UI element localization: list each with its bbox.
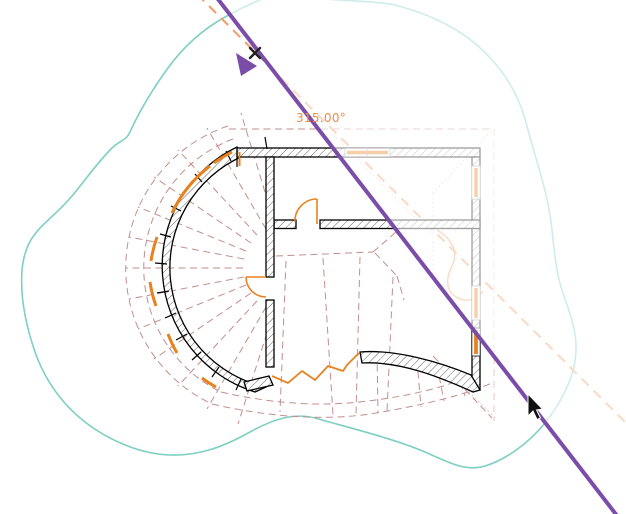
bottom-curved-wall [360, 352, 480, 392]
window-arc [151, 237, 157, 261]
window-arc [168, 334, 177, 353]
roof-mid-arc [144, 139, 233, 392]
middle-wall-stub [274, 220, 296, 229]
window-arc [150, 282, 156, 306]
door-swing [295, 199, 317, 222]
interior-wall-upper [266, 157, 274, 277]
curved-wall-end-segment [244, 376, 273, 391]
cad-viewport[interactable]: 315.00° [0, 0, 626, 514]
edge-zigzag [272, 353, 359, 383]
curved-wall [162, 147, 266, 392]
roof-fan-spokes [126, 113, 275, 424]
interior-wall-lower [266, 300, 274, 367]
angle-label: 315.00° [296, 111, 346, 125]
rotate-drag-cursor-icon [236, 48, 260, 76]
roof-break-lines [276, 225, 404, 300]
